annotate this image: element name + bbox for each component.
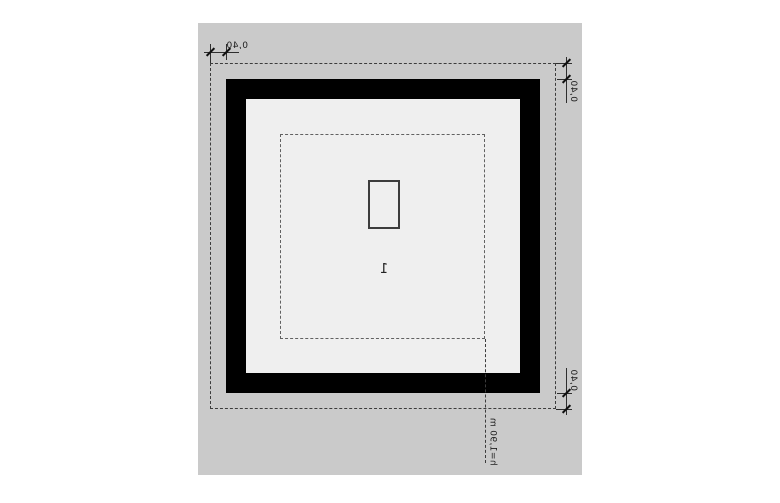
dim-bottom-right-label: 0,40 bbox=[568, 368, 578, 392]
dim-top-left-label: 0,40 bbox=[225, 41, 249, 51]
height-line-extension bbox=[485, 339, 486, 463]
room-number-label: 1 bbox=[372, 261, 396, 277]
floor-plan-canvas: 1 0,40 0,40 0,40 h=1,90 m bbox=[0, 0, 780, 503]
dim-top-right-label: 0,40 bbox=[568, 79, 578, 103]
height-annotation-label: h=1,90 m bbox=[488, 414, 499, 470]
chimney bbox=[368, 180, 400, 229]
knee-wall-dashed-line bbox=[280, 134, 485, 339]
